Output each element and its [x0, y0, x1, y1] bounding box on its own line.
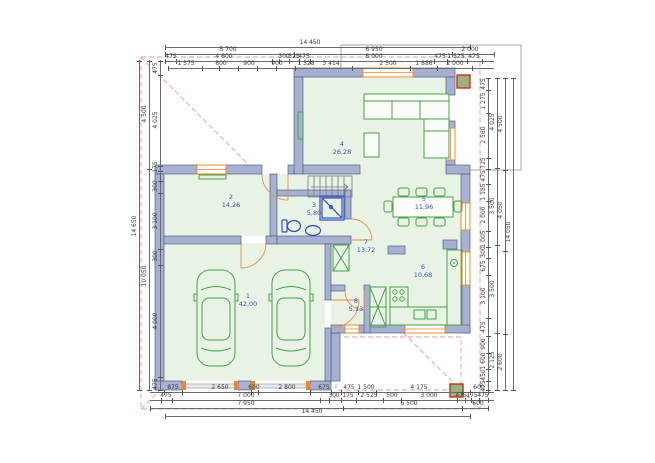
room-label-2: 214,26: [222, 193, 241, 209]
dimension-value: 1 575: [177, 61, 194, 67]
dimension-value: 4 025: [490, 113, 496, 130]
dimension-tick: [147, 390, 152, 391]
dimension-value: 475: [468, 54, 479, 60]
room-number: 2: [222, 193, 241, 201]
dimension-tick: [495, 78, 500, 79]
room-number: 7: [357, 238, 376, 246]
dimension-tick: [495, 168, 500, 169]
dimension-tick: [503, 334, 508, 335]
room-area: 26,28: [333, 148, 352, 156]
dimension-value: 300: [328, 393, 339, 399]
dimension-value: 2 600: [498, 353, 504, 370]
dimension-tick: [172, 398, 173, 403]
room-number: 5: [415, 195, 434, 203]
dimension-value: 2 500: [379, 61, 396, 67]
dimension-value: 475: [477, 393, 488, 399]
dimension-value: 800: [215, 61, 226, 67]
dimension-tick: [137, 390, 142, 391]
dimension-tick: [511, 390, 516, 391]
dimension-tick: [257, 66, 258, 71]
dimension-value: 475: [160, 393, 171, 399]
dimension-value: 7 950: [237, 401, 254, 407]
room-label-7: 713,72: [357, 238, 376, 254]
dimension-value: 1 185: [481, 183, 487, 200]
dimension-tick: [495, 390, 500, 391]
dimension-value: 475: [165, 54, 176, 60]
room-area: 14,26: [222, 201, 241, 209]
dimension-tick: [165, 414, 166, 419]
dimension-tick: [486, 275, 491, 276]
dimension-value: 475: [153, 62, 159, 73]
dimension-value: 10 050: [142, 266, 148, 287]
dimension-value: 2 650: [211, 385, 228, 391]
dimension-tick: [352, 66, 353, 71]
dimension-value: 2 000: [481, 206, 487, 223]
dimension-tick: [488, 406, 489, 411]
dimension-value: 3 100: [481, 287, 487, 304]
dimension-tick: [165, 45, 166, 50]
dimension-tick: [158, 265, 163, 266]
dimension-tick: [147, 61, 152, 62]
dimension-tick: [182, 390, 183, 395]
dimension-tick: [486, 258, 491, 259]
dimension-tick: [137, 61, 142, 62]
dimension-tick: [320, 398, 321, 403]
dimension-value: 14 450: [300, 40, 321, 46]
dimension-value: 1 500: [357, 385, 374, 391]
room-area: 5,80: [307, 209, 321, 217]
dimension-value: 1 600: [481, 352, 487, 369]
dimension-tick: [410, 66, 411, 71]
dimension-value: 475: [481, 321, 487, 332]
dimension-tick: [202, 66, 203, 71]
dimension-tick: [383, 398, 384, 403]
dimension-tick: [495, 245, 500, 246]
room-floors: [164, 77, 461, 381]
dimension-value: 14 650: [132, 216, 138, 237]
dimension-value: 1 275: [481, 92, 487, 109]
dimension-tick: [472, 66, 473, 71]
dimension-line: [139, 60, 140, 390]
dimension-tick: [437, 66, 438, 71]
dimension-value: 725: [481, 157, 487, 168]
dimension-value: 3 000: [420, 393, 437, 399]
dimension-value: 3 414: [322, 61, 339, 67]
dimension-value: 14 050: [506, 222, 512, 243]
dimension-value: 3 500: [490, 197, 496, 214]
room-area: 10,68: [414, 271, 433, 279]
dimension-tick: [462, 406, 463, 411]
dimension-value: 475: [153, 378, 159, 389]
floor-plan-canvas: 142,00214,2635,80426,28511,96610,68713,7…: [0, 0, 655, 463]
dimension-value: 3 100: [153, 212, 159, 229]
coffee-table: [364, 133, 379, 157]
dimension-tick: [486, 318, 491, 319]
dimension-value: 300: [153, 180, 159, 191]
dimension-tick: [486, 90, 491, 91]
room-label-5: 511,96: [415, 195, 434, 211]
room-label-3: 35,80: [307, 201, 321, 217]
dimension-value: 4 050: [498, 201, 504, 218]
dimension-tick: [158, 193, 163, 194]
dimension-value: 4 500: [142, 105, 148, 122]
dimension-tick: [495, 333, 500, 334]
dimension-tick: [168, 66, 169, 71]
dimension-value: 450: [481, 369, 487, 380]
terrace-dashed-outline: [336, 337, 461, 390]
dimension-line: [168, 68, 494, 69]
dimension-value: 675: [318, 385, 329, 391]
dimension-value: 4 000: [153, 312, 159, 329]
dimension-value: 175: [342, 393, 353, 399]
dimension-tick: [150, 406, 151, 411]
dimension-value: 900: [481, 338, 487, 349]
dimension-tick: [147, 169, 152, 170]
dimension-value: 600: [248, 385, 259, 391]
dimension-value: 4 025: [153, 111, 159, 128]
dimension-value: 475: [343, 385, 354, 391]
dimension-line: [149, 60, 150, 390]
dimension-value: 900: [271, 61, 282, 67]
room-label-4: 426,28: [333, 140, 352, 156]
dimension-value: 900: [243, 61, 254, 67]
dimension-value: 14 450: [302, 409, 323, 415]
dimension-value: 1 886: [415, 61, 432, 67]
dimension-value: 475: [481, 78, 487, 89]
dimension-value: 475: [481, 380, 487, 391]
dimension-tick: [494, 52, 495, 57]
dimension-value: 175: [466, 393, 477, 399]
room-label-8: 85,13: [349, 297, 363, 313]
dimension-line: [160, 60, 161, 390]
dimension-value: 6 500: [400, 401, 417, 407]
dimension-tick: [238, 66, 239, 71]
dimension-line: [150, 392, 494, 393]
dimension-value: 475: [434, 54, 445, 60]
dimension-tick: [486, 336, 491, 337]
dimension-tick: [470, 414, 471, 419]
dimension-tick: [503, 78, 508, 79]
dimension-line: [165, 416, 470, 417]
dimension-line: [513, 78, 514, 390]
dimension-tick: [343, 406, 344, 411]
dimension-line: [150, 400, 494, 401]
dimension-value: 300: [153, 250, 159, 261]
dimension-value: 175: [153, 161, 159, 172]
room-number: 3: [307, 201, 321, 209]
dimension-tick: [158, 75, 163, 76]
dimension-value: 2 800: [278, 385, 295, 391]
dimension-value: 1 005: [481, 230, 487, 247]
dimension-tick: [295, 66, 296, 71]
dimension-tick: [503, 251, 508, 252]
dimension-value: 675: [481, 260, 487, 271]
dimension-tick: [482, 59, 483, 64]
room-number: 8: [349, 297, 363, 305]
dimension-tick: [503, 390, 508, 391]
room-number: 6: [414, 263, 433, 271]
dimension-tick: [310, 390, 311, 395]
dimension-value: 2 525: [360, 393, 377, 399]
dimension-value: 2 125: [490, 351, 496, 368]
dimension-value: 4 500: [498, 115, 504, 132]
room-number: 4: [333, 140, 352, 148]
dimension-value: 475: [455, 393, 466, 399]
dimension-value: 500: [386, 393, 397, 399]
room-area: 5,13: [349, 305, 363, 313]
dimension-value: 4 175: [410, 385, 427, 391]
room-label-6: 610,68: [414, 263, 433, 279]
dimension-value: 2 000: [446, 61, 463, 67]
dimension-value: 600: [472, 401, 483, 407]
room-area: 11,96: [415, 203, 434, 211]
room-number: 1: [239, 292, 258, 300]
dimension-tick: [503, 170, 508, 171]
dimension-tick: [511, 78, 516, 79]
dimension-value: 7 000: [237, 393, 254, 399]
room-label-1: 142,00: [239, 292, 258, 308]
dimension-value: 300: [481, 246, 487, 257]
dimension-value: 475: [481, 170, 487, 181]
dimension-value: 2 580: [481, 126, 487, 143]
dimension-tick: [356, 398, 357, 403]
dimension-value: 875: [167, 385, 178, 391]
dimension-value: 3 500: [490, 280, 496, 297]
room-area: 13,72: [357, 246, 376, 254]
dimension-line: [165, 47, 470, 48]
room-area: 42,00: [239, 300, 258, 308]
dimension-value: 1 528: [297, 61, 314, 67]
dimension-tick: [158, 390, 163, 391]
